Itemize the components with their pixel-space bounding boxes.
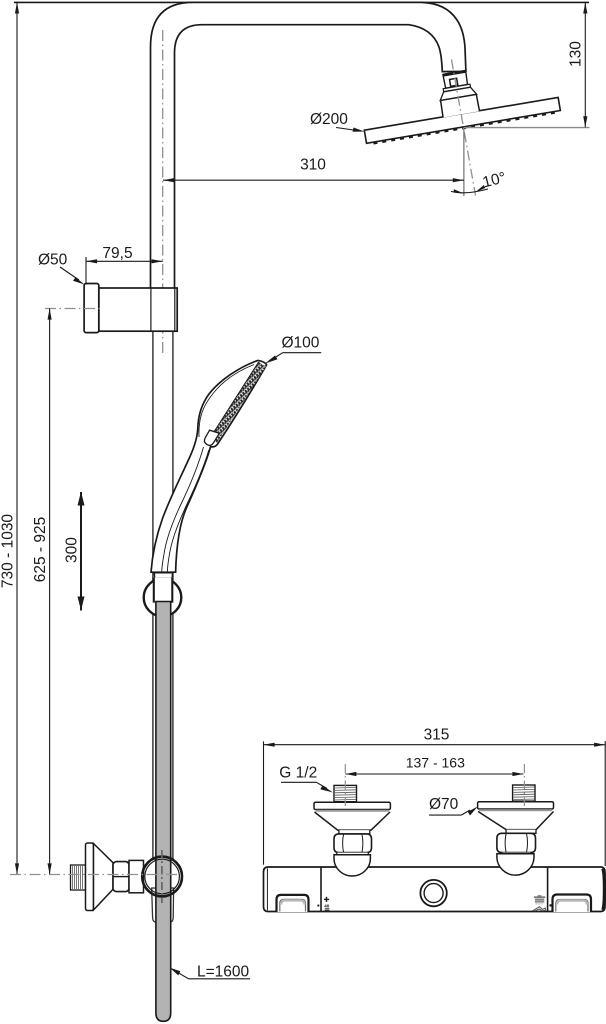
svg-text:300: 300 — [64, 537, 81, 563]
svg-text:310: 310 — [300, 157, 326, 174]
svg-text:L=1600: L=1600 — [197, 964, 250, 981]
svg-text:40: 40 — [324, 903, 330, 908]
svg-text:Ø70: Ø70 — [429, 796, 459, 813]
svg-text:730 - 1030: 730 - 1030 — [0, 514, 17, 588]
svg-text:137 - 163: 137 - 163 — [406, 755, 465, 771]
svg-text:625 - 925: 625 - 925 — [32, 517, 49, 583]
svg-text:315: 315 — [424, 727, 450, 744]
svg-text:G 1/2: G 1/2 — [279, 765, 317, 782]
svg-text:130: 130 — [568, 41, 585, 67]
svg-text:Ø100: Ø100 — [282, 335, 320, 352]
svg-text:79,5: 79,5 — [102, 245, 132, 262]
svg-text:Ø200: Ø200 — [310, 111, 348, 128]
svg-text:Ø50: Ø50 — [38, 252, 68, 269]
